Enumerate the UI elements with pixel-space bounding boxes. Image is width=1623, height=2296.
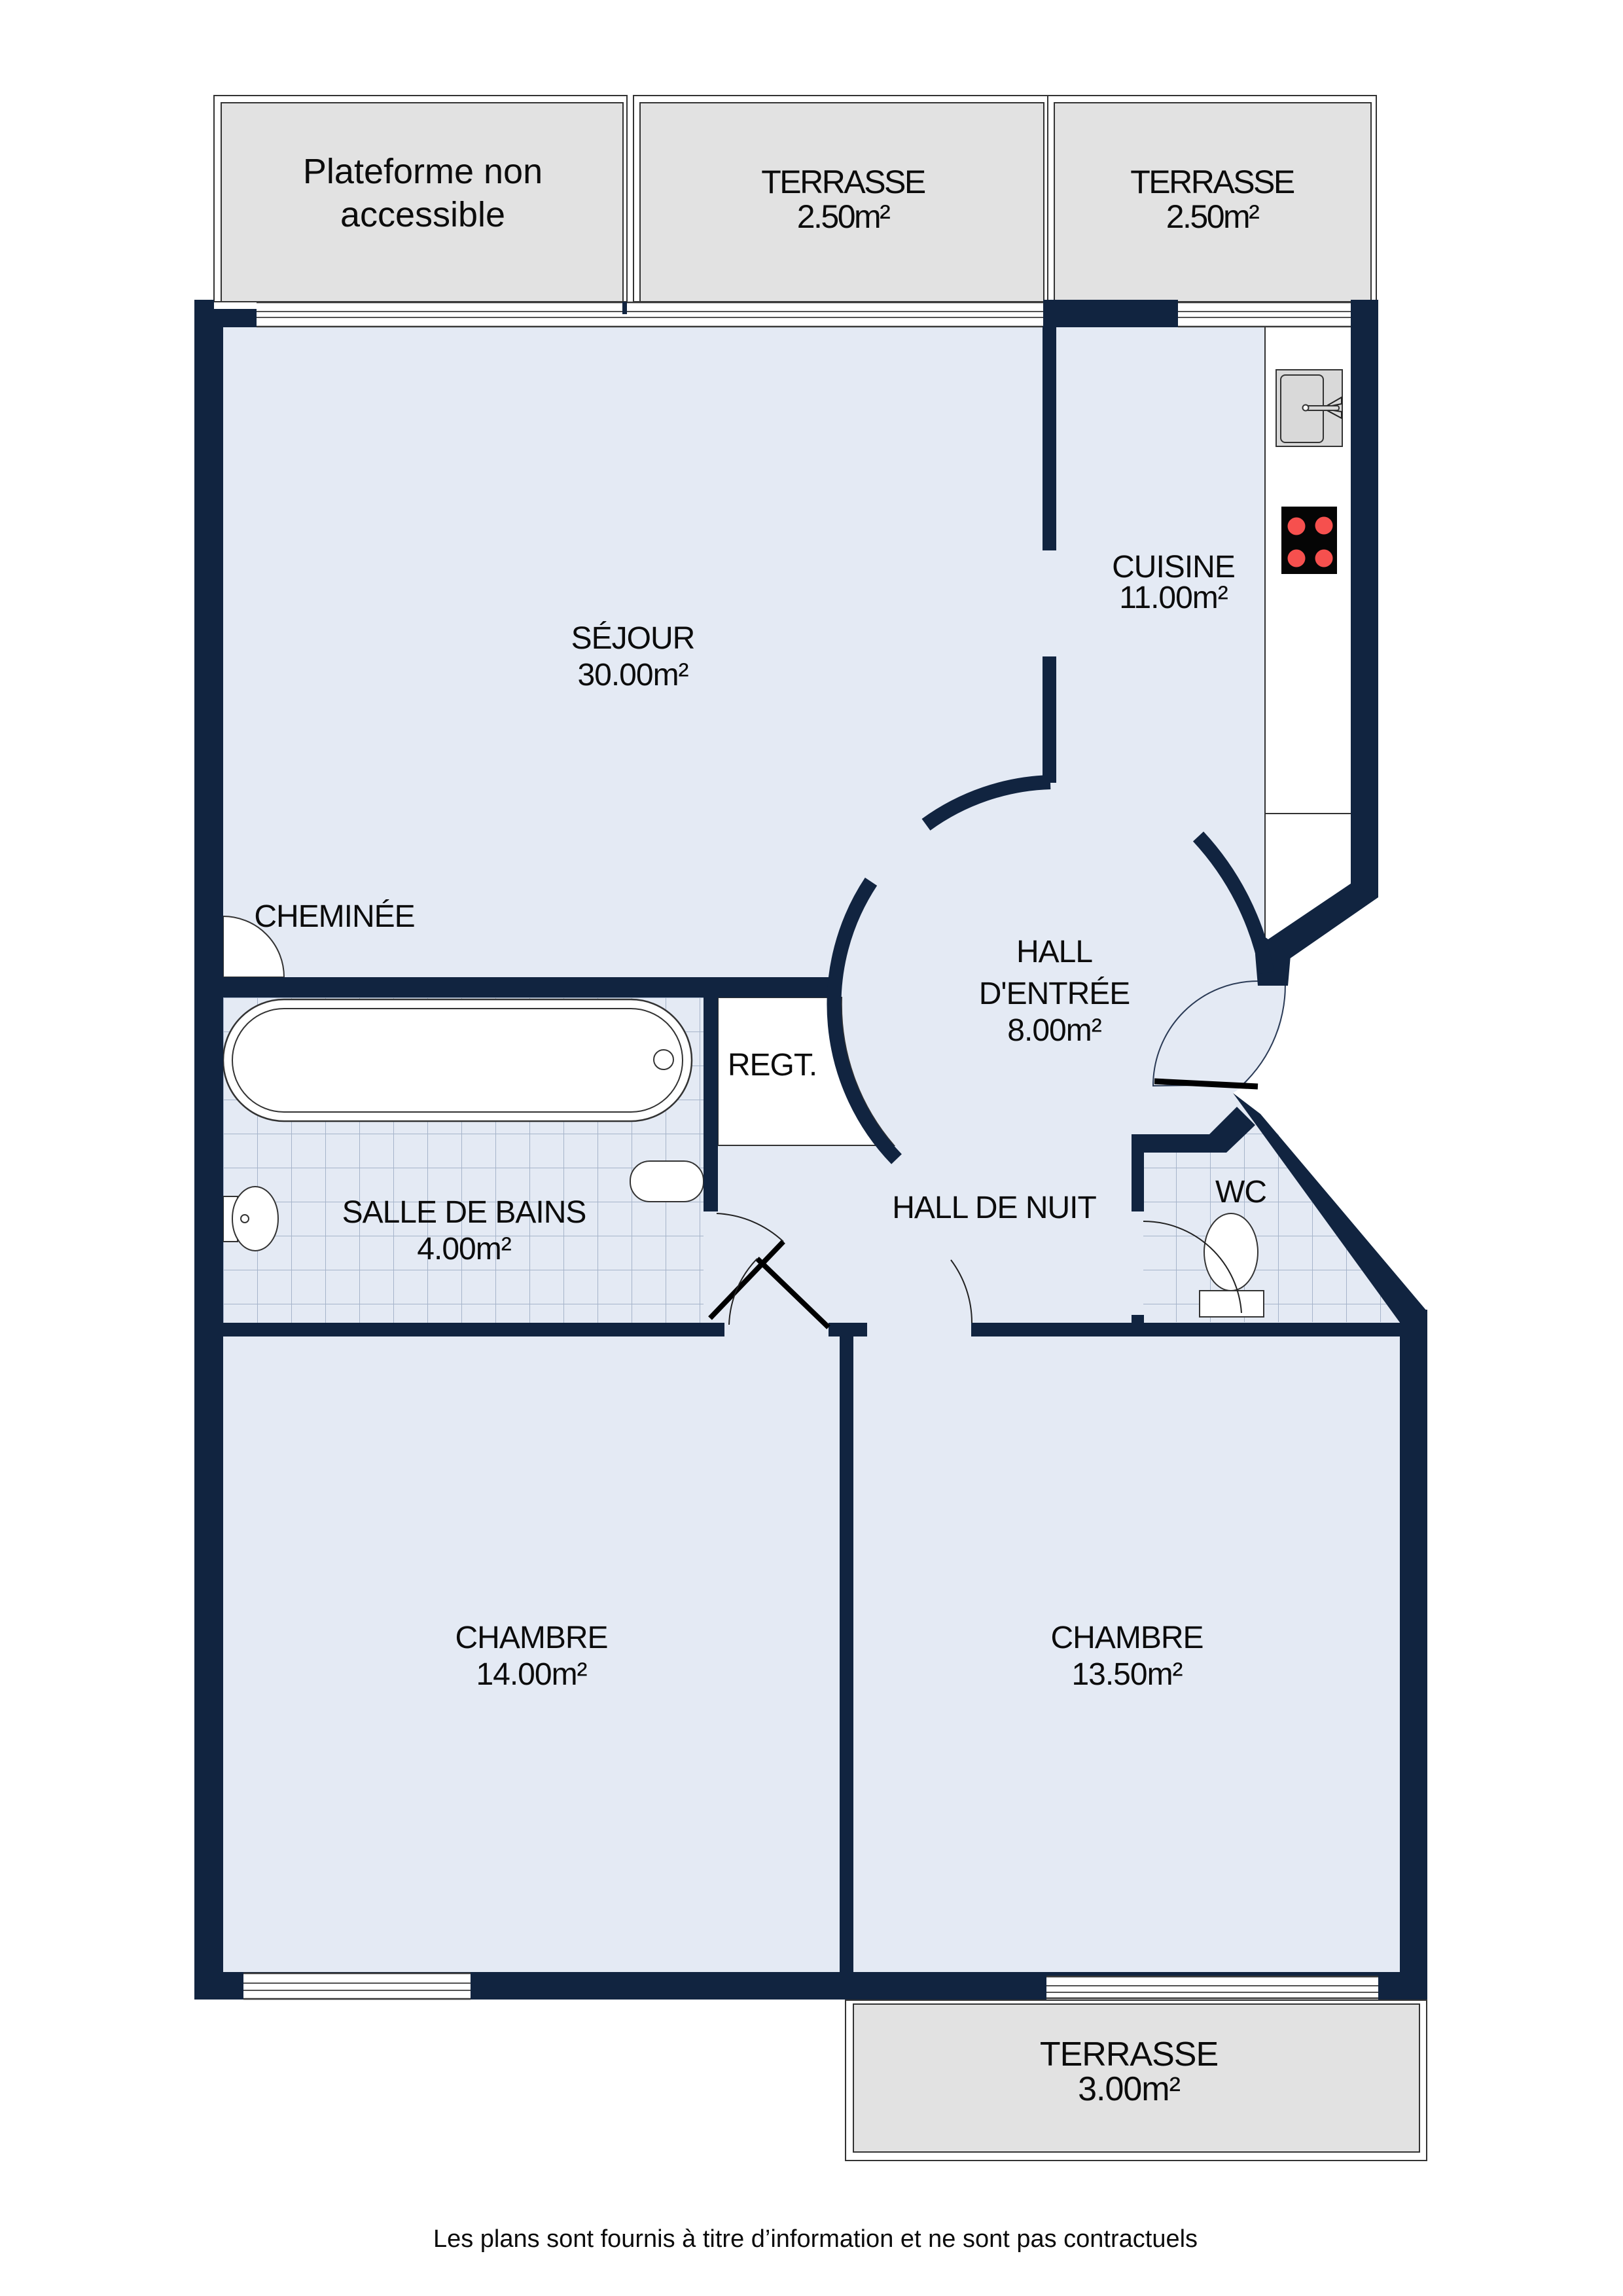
svg-text:3.00m²: 3.00m² [1078,2070,1181,2108]
svg-text:HALL DE NUIT: HALL DE NUIT [892,1191,1096,1225]
svg-text:SALLE DE BAINS: SALLE DE BAINS [342,1195,586,1230]
svg-text:accessible: accessible [340,195,505,234]
svg-text:13.50m²: 13.50m² [1071,1657,1183,1692]
svg-text:4.00m²: 4.00m² [417,1232,511,1266]
svg-text:8.00m²: 8.00m² [1007,1013,1101,1048]
svg-text:CHAMBRE: CHAMBRE [455,1621,607,1655]
svg-text:Plateforme non: Plateforme non [303,152,543,191]
svg-text:SÉJOUR: SÉJOUR [571,621,695,656]
svg-text:Les plans sont fournis à titre: Les plans sont fournis à titre d’informa… [433,2225,1198,2253]
svg-text:D'ENTRÉE: D'ENTRÉE [979,977,1130,1011]
svg-text:HALL: HALL [1016,935,1092,969]
svg-text:CUISINE: CUISINE [1112,550,1235,584]
svg-text:30.00m²: 30.00m² [577,658,688,692]
svg-text:TERRASSE: TERRASSE [1130,164,1294,200]
svg-text:TERRASSE: TERRASSE [1040,2036,1218,2073]
svg-text:CHEMINÉE: CHEMINÉE [254,899,414,934]
svg-text:2.50m²: 2.50m² [797,198,890,235]
svg-text:REGT.: REGT. [728,1048,817,1083]
svg-text:CHAMBRE: CHAMBRE [1050,1621,1203,1655]
svg-text:WC: WC [1215,1175,1266,1210]
svg-text:TERRASSE: TERRASSE [761,164,925,200]
svg-text:14.00m²: 14.00m² [476,1657,587,1692]
svg-text:11.00m²: 11.00m² [1119,581,1228,615]
svg-text:2.50m²: 2.50m² [1166,198,1259,235]
